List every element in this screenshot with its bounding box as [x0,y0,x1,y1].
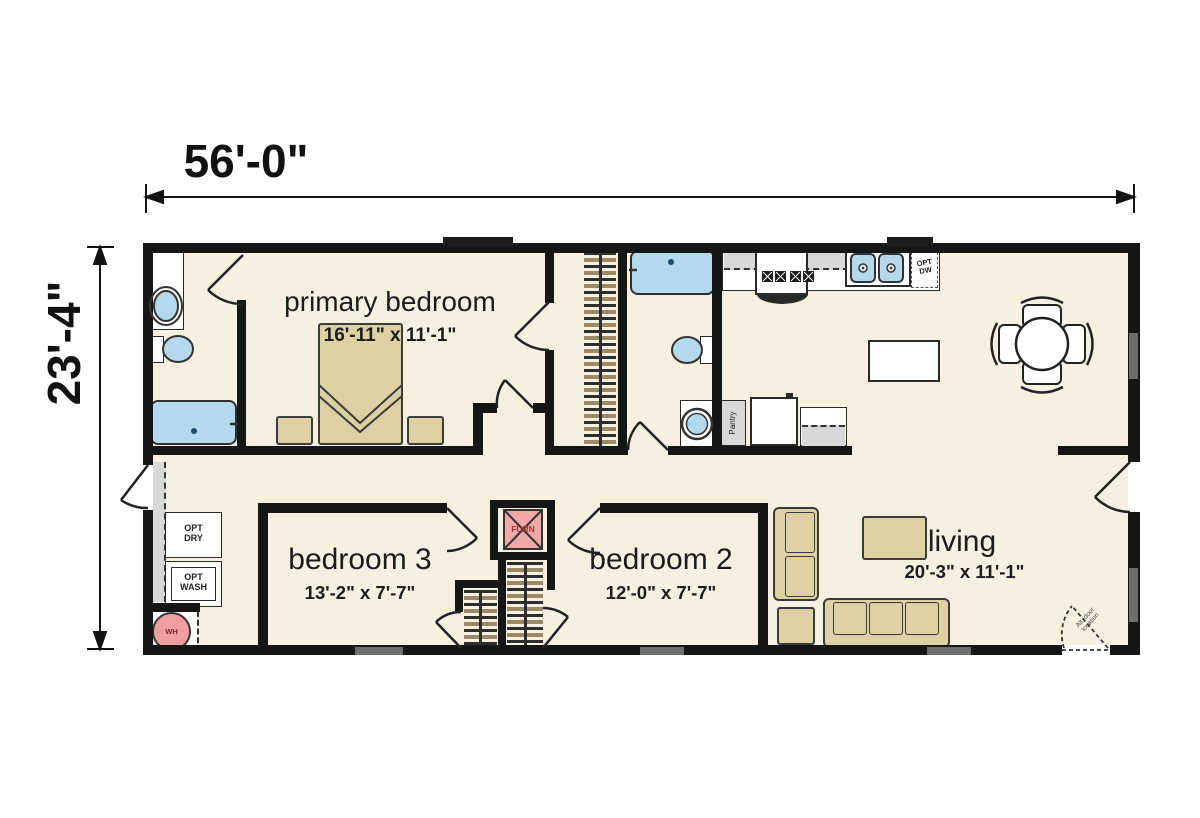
primary-bedroom-size: 16'-11" x 11'-1" [250,325,530,347]
wall-bedroom-entry-a [473,403,497,413]
living-size: 20'-3" x 11'-1" [882,561,1047,583]
refrigerator [750,397,798,446]
furnace-label: FURN [503,524,543,534]
wall-bedroom-entry-b [533,403,554,413]
window-top-primary [443,237,513,247]
wall-furnace-left [490,500,498,560]
opt-dryer-label: OPT DRY [165,523,222,543]
stove [755,250,808,295]
wall-bedroom-closet-upper [545,243,554,303]
window-top-kitchen [887,237,933,247]
wall-bedroom2-top [600,503,768,513]
kitchen-sink-cabinet [845,250,911,287]
closet3-rod [479,590,482,647]
bedroom2-label: bedroom 2 [571,543,751,577]
height-dimension-line [87,247,114,649]
wall-main-divider-c [668,446,852,455]
door-opening-left-wall [143,465,153,510]
vanity-primary-bath [150,250,184,330]
wall-main-divider-d [1058,446,1135,455]
wall-bedroom3-top [258,503,447,513]
living-label: living [902,525,1022,559]
bedroom2-size: 12'-0" x 7'-7" [571,582,751,604]
primary-bedroom-label: primary bedroom [250,286,530,318]
bedroom3-size: 13'-2" x 7'-7" [270,582,450,604]
water-heater-label: WH [152,627,191,637]
wall-closets-divider [498,560,506,655]
loveseat-cushion-1 [785,512,815,553]
vanity-bath2 [680,400,715,447]
walkin-closet-rod [599,252,602,446]
width-dimension-line [146,184,1134,213]
wall-bedroom3-left [258,503,268,655]
wall-furnace-top [490,500,555,508]
window-right-living [1129,568,1138,622]
sofa-cushion-3 [905,602,939,635]
nightstand-left [276,416,313,445]
refrigerator-handle [786,393,793,398]
nightstand-right [407,416,444,445]
window-bottom-bedroom3 [355,647,403,655]
wall-closet-bath2 [618,243,627,455]
door-opening-alt-door [1062,645,1110,655]
ottoman [777,607,815,645]
opt-washer-label: OPT WASH [165,572,222,592]
closet2-rod [524,562,527,647]
wall-utility-bottom [143,603,200,612]
loveseat-cushion-2 [785,556,815,597]
height-dimension-label: 23'-4" [37,243,91,443]
wall-closet3-left-stub [455,580,463,612]
kitchen-counter-2-base [802,425,845,446]
floor-plan: 56'-0" 23'-4" [0,0,1200,818]
wall-top [143,243,1140,253]
wall-furnace-right [547,500,555,560]
wall-bath1-bedroom [237,300,246,455]
sofa-cushion-1 [833,602,867,635]
wall-closet2-right-stub [547,552,555,590]
window-bottom-living [927,647,971,655]
bedroom3-label: bedroom 3 [270,543,450,577]
wall-bath2-kitchen [712,243,722,455]
pantry-label: Pantry [728,393,738,453]
window-right-dining [1129,333,1138,379]
wall-bedroom2-right [758,503,768,655]
bathtub-primary-bath [150,400,237,445]
wall-furnace-bottom [490,552,555,560]
window-bottom-bedroom2 [640,647,684,655]
wall-main-divider-a [143,446,478,455]
sofa-cushion-2 [869,602,903,635]
bathtub-bath2 [630,250,715,295]
width-dimension-label: 56'-0" [126,134,366,188]
door-opening-right-wall [1128,462,1140,512]
wall-main-divider-b [545,446,628,455]
kitchen-island [868,340,940,382]
